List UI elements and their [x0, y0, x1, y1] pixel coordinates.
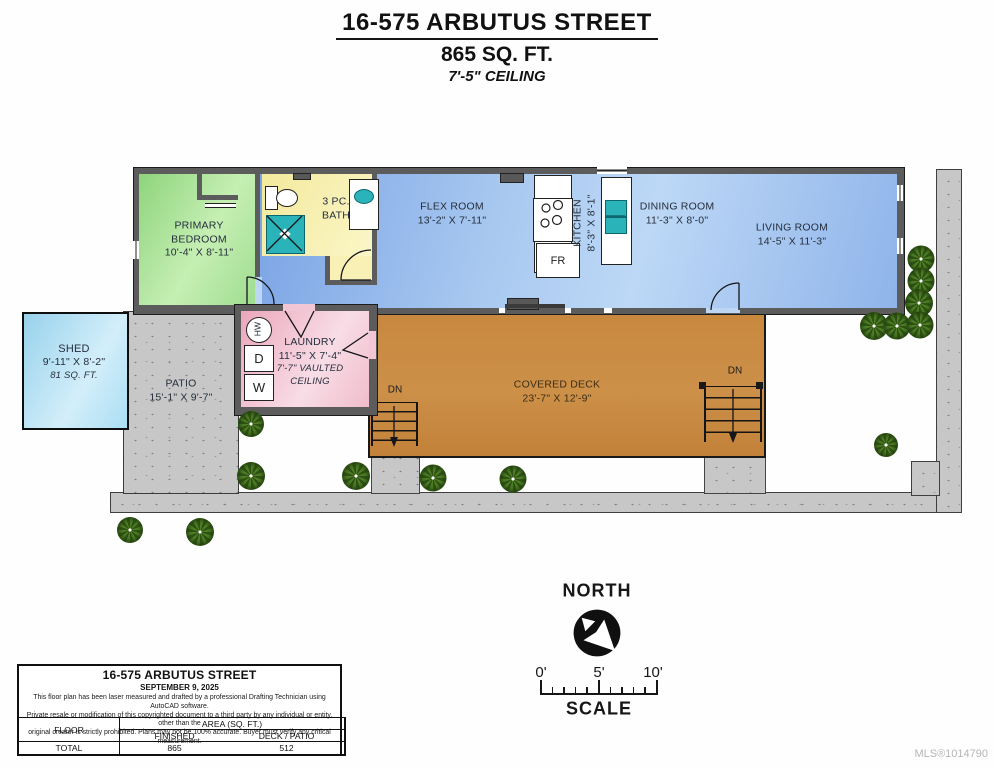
- toilet-bowl-icon: [276, 189, 298, 207]
- floor-plan-page: 16-575 ARBUTUS STREET 865 SQ. FT. 7'-5" …: [0, 0, 994, 768]
- bath-sink-icon: [354, 189, 374, 204]
- sliding-door-panel: [505, 304, 565, 308]
- bath-pocket-wall-b: [325, 280, 377, 285]
- stairs-down-label-left: DN: [388, 385, 402, 396]
- area-table-area-header: AREA (SQ. FT.): [120, 718, 344, 730]
- mls-watermark: MLS®1014790: [870, 748, 988, 760]
- deck-stairs-left: [371, 402, 418, 446]
- area-table-finished-value: 865: [120, 742, 229, 754]
- stair-post: [756, 382, 763, 389]
- bedroom-door-opening: [255, 277, 262, 304]
- slider-gap-3: [604, 308, 612, 313]
- area-table-deck-value: 512: [229, 742, 344, 754]
- area-table-deck-header: DECK / PATIO: [229, 730, 344, 742]
- info-address: 16-575 ARBUTUS STREET: [19, 668, 340, 682]
- walkway-step: [911, 461, 940, 496]
- info-box: 16-575 ARBUTUS STREET SEPTEMBER 9, 2025 …: [17, 664, 342, 756]
- living-window-2: [897, 238, 903, 254]
- patio-label: PATIO 15'-1" X 9'-7": [149, 377, 212, 404]
- flex-room-label: FLEX ROOM 13'-2" X 7'-11": [418, 200, 487, 227]
- kitchen-window: [597, 167, 627, 174]
- stove-icon: [533, 198, 573, 242]
- deck-stairs-right: [704, 386, 762, 442]
- bush-icon: [186, 518, 214, 546]
- stair-post: [699, 382, 706, 389]
- north-arrow-icon: [570, 606, 624, 660]
- kitchen-label: KITCHEN 8'-3" X 8'-1": [571, 194, 598, 251]
- slider-gap-1: [499, 308, 505, 313]
- bush-icon: [907, 312, 934, 339]
- closet-slider: [205, 203, 236, 208]
- shed-label: SHED 9'-11" X 8'-2" 81 SQ. FT.: [43, 342, 106, 382]
- living-room-label: LIVING ROOM 14'-5" X 11'-3": [756, 221, 828, 248]
- deck-label: COVERED DECK 23'-7" X 12'-9": [514, 378, 600, 405]
- north-label: NORTH: [563, 581, 632, 602]
- ceiling-height-text: 7'-5" CEILING: [0, 69, 994, 86]
- area-table: FLOOR AREA (SQ. FT.) FINISHED DECK / PAT…: [17, 717, 346, 756]
- bush-icon: [500, 466, 527, 493]
- total-area-text: 865 SQ. FT.: [0, 43, 994, 66]
- washer-icon: W: [244, 374, 274, 401]
- area-table-finished-header: FINISHED: [120, 730, 229, 742]
- bush-icon: [420, 465, 447, 492]
- info-date: SEPTEMBER 9, 2025: [19, 683, 340, 692]
- bush-icon: [117, 517, 143, 543]
- laundry-side-door-opening: [369, 331, 376, 359]
- kitchen-sink-2: [605, 217, 627, 234]
- bedroom-window: [133, 241, 139, 259]
- wall-tab-flex: [500, 173, 524, 183]
- slider-gap-2: [565, 308, 571, 313]
- area-table-floor-header: FLOOR: [19, 718, 120, 742]
- scale-label: SCALE: [566, 699, 632, 720]
- bush-icon: [874, 433, 898, 457]
- bush-icon: [238, 411, 264, 437]
- laundry-door-opening: [283, 304, 315, 311]
- page-title: 16-575 ARBUTUS STREET: [336, 10, 658, 40]
- bush-icon: [342, 462, 370, 490]
- main-door-opening: [706, 308, 740, 313]
- bath-label: 3 PC. BATH: [322, 195, 350, 222]
- stairs-down-label-right: DN: [728, 366, 742, 377]
- walkway-bottom: [110, 492, 962, 513]
- dining-room-label: DINING ROOM 11'-3" X 8'-0": [640, 200, 715, 227]
- closet-wall-h: [197, 195, 238, 200]
- title-block: 16-575 ARBUTUS STREET 865 SQ. FT. 7'-5" …: [0, 10, 994, 86]
- scale-bar: [540, 677, 658, 695]
- living-window-1: [897, 185, 903, 201]
- wall-tab-bath: [293, 173, 311, 180]
- primary-bedroom-label: PRIMARY BEDROOM 10'-4" X 8'-11": [165, 220, 234, 261]
- bathroom-entry-pocket: [330, 256, 372, 280]
- laundry-label: LAUNDRY 11'-5" X 7'-4" 7'-7" VAULTED CEI…: [277, 336, 344, 388]
- dryer-icon: D: [244, 345, 274, 372]
- hot-water-label: HW: [252, 322, 263, 337]
- kitchen-sink-1: [605, 200, 627, 217]
- area-table-total-label: TOTAL: [19, 742, 120, 754]
- bush-icon: [237, 462, 265, 490]
- vanity-icon: [349, 179, 379, 230]
